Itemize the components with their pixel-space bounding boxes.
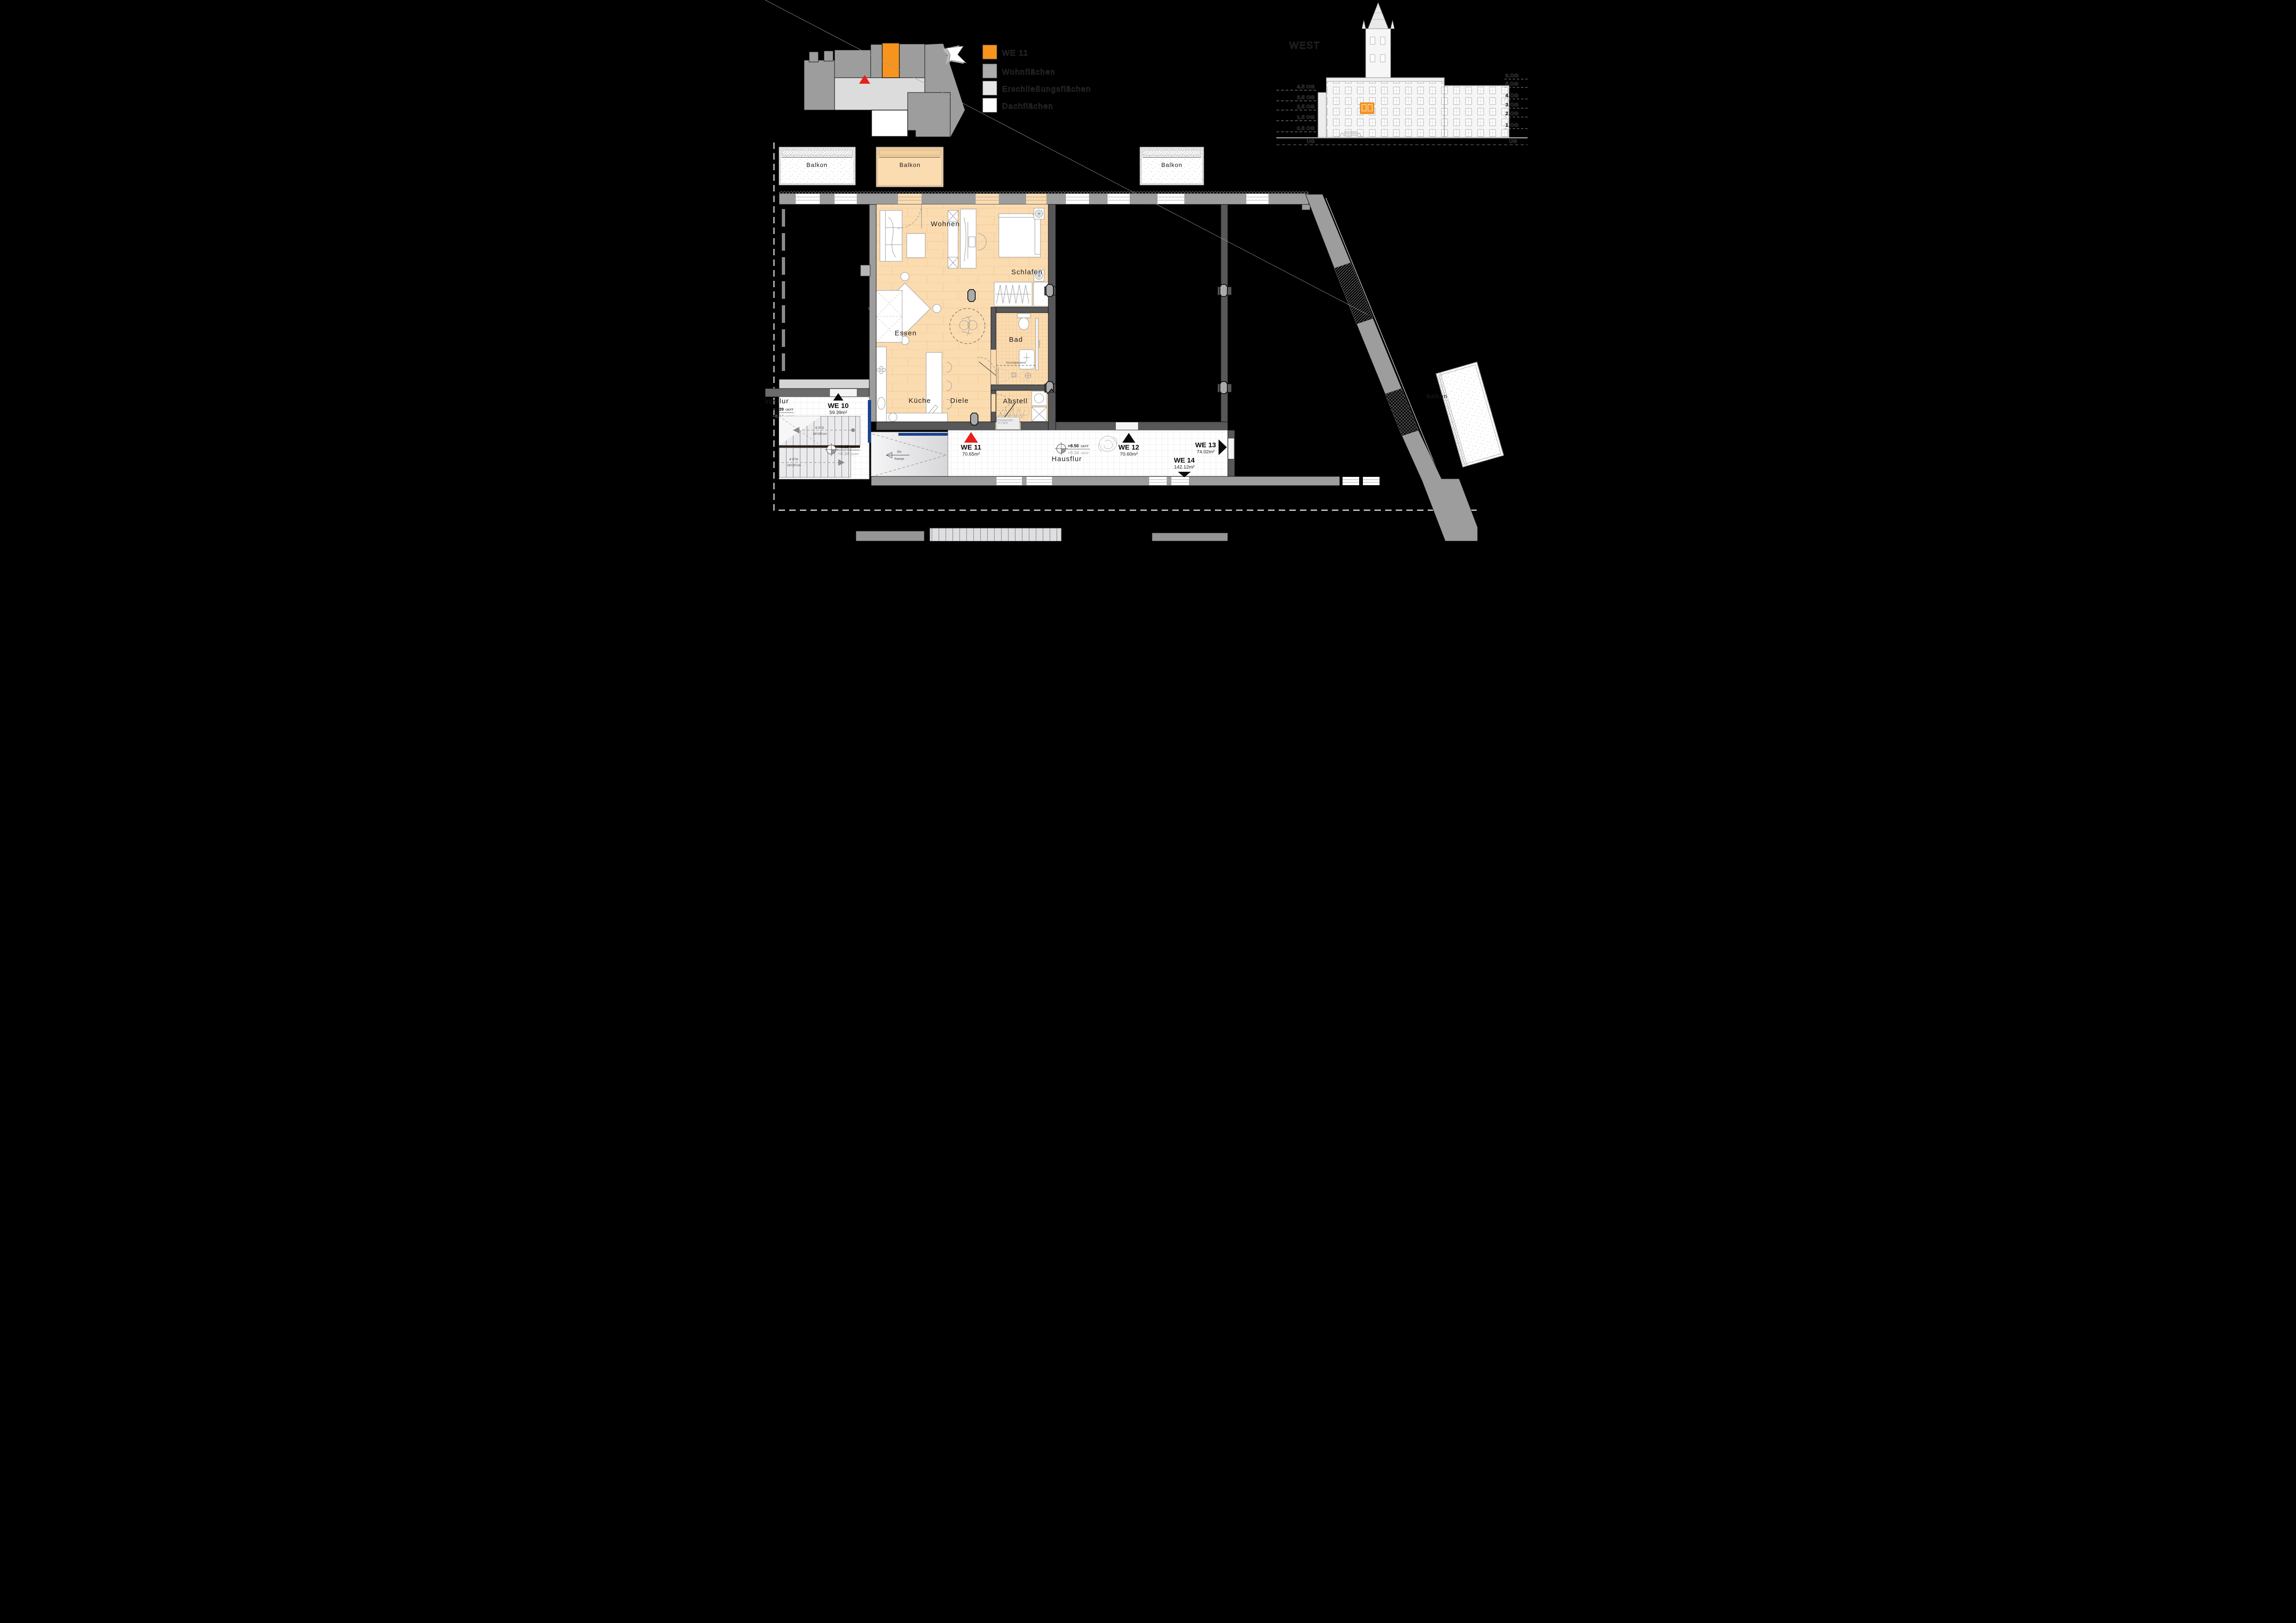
legend-swatch-dachflaechen: [983, 98, 997, 112]
corridor-okrf-suffix: OKRF: [1081, 452, 1089, 455]
level-label-25og: 2.5 OG: [1297, 104, 1315, 110]
we11-west-wall: [869, 204, 876, 422]
landing-okff-suffix: OKFF: [851, 446, 859, 449]
balcony-we14-label: Balkon: [1426, 393, 1448, 400]
landing-okrf-value: +8.34: [838, 451, 849, 457]
sofa: [880, 210, 902, 261]
level-label-2og: 2.OG: [1505, 111, 1518, 117]
level-label-6og: 6.OG: [1505, 73, 1518, 79]
corridor-okff-value: +8.50: [1068, 444, 1079, 449]
level-label-45og: 4.5 OG: [1297, 84, 1315, 90]
balcony-we10: Balkon: [779, 147, 855, 185]
room-label-schlafen: Schlafen: [1011, 268, 1043, 276]
balcony-we10-label: Balkon: [806, 161, 828, 168]
corridor-okrf-value: +8.34: [1068, 450, 1079, 456]
hausflur-bottom-label: Hausflur: [1052, 455, 1082, 463]
level-label-ug-left: UG: [1307, 139, 1315, 144]
we13-label: WE 13: [1195, 441, 1216, 449]
svg-text:19⁸/25⁶cm: 19⁸/25⁶cm: [813, 432, 827, 436]
level-label-ug-right: UG: [1509, 139, 1517, 144]
we10-label: WE 10: [828, 402, 848, 410]
wall-schlafen-bad: [991, 307, 1048, 313]
we12-area: 70.60m²: [1120, 451, 1138, 457]
legend-label-dachflaechen: Dachflächen: [1002, 102, 1053, 111]
room-label-essen: Essen: [895, 329, 917, 337]
svg-text:19²/25⁶cm: 19²/25⁶cm: [787, 464, 801, 467]
we10-area: 59.39m²: [829, 410, 848, 415]
wall-bad-abstell: [991, 385, 1048, 390]
elevation-left-section: [1318, 93, 1326, 137]
we11-east-wall: [1048, 204, 1056, 430]
svg-text:8 STG: 8 STG: [816, 426, 824, 430]
elevation-highlight-we11: [1360, 103, 1374, 114]
left-okff-suffix: OKFF: [786, 408, 793, 412]
shower-glass-label: Duschglaswand: [1006, 362, 1026, 364]
room-label-abstell: Abstell: [1003, 397, 1027, 405]
door-blue-marker-vertical: [868, 400, 871, 443]
landing-okrf-suffix: OKRF: [851, 453, 859, 456]
hausflur-left: WE 10 59.39m² Hausflur +8.39 OKFF +8.34 …: [765, 393, 871, 479]
level-label-15og: 1.5 OG: [1297, 115, 1315, 120]
balcony-we11-label: Balkon: [899, 161, 921, 168]
elevation-title: WEST: [1289, 40, 1320, 51]
we11-south-wall: [876, 422, 1048, 430]
wardrobe: [994, 282, 1048, 306]
corridor-okff-suffix: OKFF: [1081, 445, 1089, 448]
hausflur-left-label: Hausflur: [765, 397, 789, 405]
level-label-05og: 0.5 OG: [1297, 126, 1315, 131]
elevation-main-facade: [1326, 78, 1444, 137]
level-label-35og: 3.5 OG: [1297, 95, 1315, 100]
we14-label: WE 14: [1174, 457, 1195, 464]
svg-text:8 STG: 8 STG: [790, 458, 798, 461]
we11-label: WE 11: [961, 444, 981, 451]
level-label-1og: 1.OG: [1505, 123, 1518, 128]
washbasin: [1019, 350, 1034, 369]
wall-shaft-box: [860, 265, 870, 276]
legend-label-wohnflaechen: Wohnflächen: [1002, 68, 1055, 76]
legend-label-we11: WE 11: [1002, 49, 1028, 57]
elevation-right-facade: [1444, 86, 1509, 137]
entrance-mat: Eingangsmatte 75 x 50cm: [996, 417, 1020, 429]
landing-okff-value: +8.39: [838, 444, 849, 450]
ramp: 5% Rampe: [871, 432, 950, 478]
towel-rail-label: Duschtuchhalter: [997, 367, 1000, 384]
floorplan-drawing: WE 11 Wohnflächen Erschließungsflächen D…: [765, 0, 1531, 541]
level-label-4og: 4.OG: [1505, 93, 1518, 99]
room-label-wohnen: Wohnen: [931, 220, 960, 228]
site-highlight-we11: [882, 43, 899, 78]
ramp-slope: 5%: [897, 450, 902, 454]
site-roof-area: [872, 110, 908, 136]
ramp-label: Rampe: [895, 457, 904, 461]
legend-swatch-erschliessungsflaechen: [983, 81, 997, 95]
legend-label-erschliessungsflaechen: Erschließungsflächen: [1002, 85, 1091, 93]
level-label-5og: 5.OG: [1505, 81, 1518, 87]
bed: [999, 214, 1040, 257]
north-facade-wall: [779, 191, 1309, 204]
floorplan-sheet: WE 11 Wohnflächen Erschließungsflächen D…: [765, 0, 1531, 541]
balcony-neighbor-top: Balkon: [1140, 147, 1204, 185]
we13-area: 74.02m²: [1197, 449, 1215, 455]
balcony-neighbor-label: Balkon: [1161, 161, 1182, 168]
room-label-diele: Diele: [950, 397, 969, 405]
ceiling-vent-icon: [1034, 208, 1044, 219]
legend-swatch-we11: [983, 45, 997, 59]
mirror-label: Spiegel: [1038, 340, 1041, 348]
room-label-kueche: Küche: [909, 397, 931, 405]
we11-area: 70.65m²: [962, 451, 980, 457]
we12-label: WE 12: [1118, 444, 1139, 451]
door-blue-marker-horizontal: [898, 433, 950, 436]
coffee-table: [907, 234, 925, 258]
left-okff-value: +8.39: [773, 407, 784, 412]
balcony-we11: Balkon: [876, 147, 943, 187]
we14-area: 142.12m²: [1174, 464, 1195, 470]
room-label-bad: Bad: [1009, 336, 1023, 344]
apartment-we11: Spiegel Duschglaswand Duschtuchhalter: [869, 204, 1048, 429]
legend-swatch-wohnflaechen: [983, 64, 997, 78]
level-label-3og: 3.OG: [1505, 102, 1518, 108]
entrance-mat-label2: 75 x 50cm: [997, 422, 1008, 425]
